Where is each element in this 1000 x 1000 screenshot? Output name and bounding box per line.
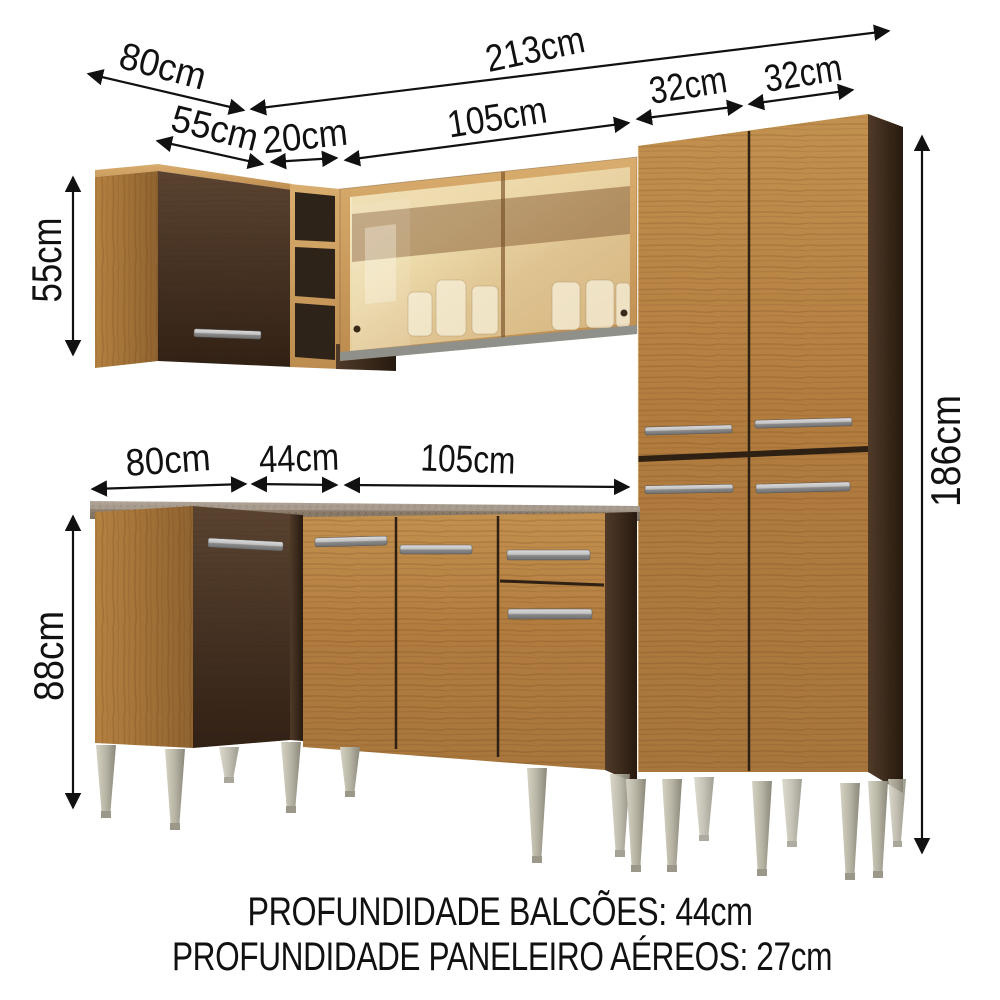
leg bbox=[165, 749, 185, 830]
footer-depth-balcoes: PROFUNDIDADE BALCÕES: 44cm bbox=[248, 889, 753, 934]
upper-left-wall-cabinet bbox=[95, 164, 292, 368]
glass-window-reflection bbox=[365, 224, 396, 304]
dim-label: 32cm bbox=[646, 59, 730, 113]
dim-right-pantry-186: 186cm bbox=[922, 137, 969, 852]
base-door-handle bbox=[315, 536, 387, 547]
dim-label: 55cm bbox=[167, 98, 263, 160]
dim-top-glass-105: 105cm bbox=[346, 89, 628, 160]
leg bbox=[888, 779, 906, 847]
dim-left-upper-55: 55cm bbox=[23, 178, 73, 354]
glass-wall-cabinet bbox=[340, 157, 637, 361]
dim-top-pantry-32a: 32cm bbox=[638, 59, 741, 119]
dim-label: 80cm bbox=[124, 437, 212, 485]
leg bbox=[694, 777, 714, 841]
dim-mid-side-80: 80cm bbox=[93, 437, 245, 489]
footer-depth-paneleiro: PROFUNDIDADE PANELEIRO AÉREOS: 27cm bbox=[172, 934, 832, 979]
leg bbox=[868, 781, 888, 878]
shelf-opening bbox=[295, 303, 335, 360]
base-door-handle bbox=[508, 609, 592, 619]
leg bbox=[340, 747, 360, 797]
base-corner-return bbox=[290, 514, 303, 741]
leg bbox=[626, 779, 646, 872]
leg bbox=[96, 745, 116, 818]
base-counter-end-panel bbox=[605, 512, 637, 784]
leg bbox=[752, 781, 772, 876]
base-door-handle bbox=[400, 545, 472, 554]
dim-label: 105cm bbox=[444, 89, 549, 146]
dim-arrow bbox=[93, 484, 245, 489]
shelf-opening bbox=[295, 247, 335, 299]
footer-depth-notes: PROFUNDIDADE BALCÕES: 44cm PROFUNDIDADE … bbox=[172, 889, 832, 979]
base-corner-cabinet bbox=[95, 506, 303, 748]
glass-door-knob bbox=[354, 326, 361, 333]
dim-label: 213cm bbox=[482, 19, 589, 81]
drawer-handle bbox=[507, 550, 590, 560]
leg bbox=[281, 742, 301, 813]
kitchen-cabinet-diagram: 80cm 213cm 55cm 20cm 105cm 32cm 32cm 55 bbox=[0, 0, 1000, 1000]
dim-top-side-80: 80cm bbox=[89, 35, 243, 110]
dim-label: 44cm bbox=[258, 437, 339, 482]
dim-label: 20cm bbox=[261, 112, 350, 163]
dim-label: 80cm bbox=[115, 35, 211, 98]
leg bbox=[219, 747, 239, 783]
dim-mid-corner-44: 44cm bbox=[253, 437, 340, 485]
dim-top-corner-55: 55cm bbox=[158, 98, 263, 164]
dim-label: 105cm bbox=[420, 437, 516, 482]
shelf-opening bbox=[295, 192, 335, 242]
tall-pantry-cabinet bbox=[638, 114, 903, 793]
leg bbox=[527, 768, 547, 863]
dim-label: 55cm bbox=[23, 218, 70, 303]
dim-top-pantry-32b: 32cm bbox=[750, 47, 852, 104]
base-counter bbox=[303, 512, 637, 784]
dim-top-shelf-20: 20cm bbox=[261, 112, 350, 163]
dim-arrow bbox=[346, 485, 628, 487]
dim-mid-counter-105: 105cm bbox=[346, 437, 628, 487]
glass-door-knob bbox=[621, 310, 628, 317]
dim-label: 88cm bbox=[25, 611, 72, 701]
leg bbox=[840, 783, 860, 880]
leg bbox=[782, 779, 802, 847]
leg bbox=[662, 779, 682, 872]
dim-left-base-88: 88cm bbox=[25, 517, 73, 807]
pantry-handle bbox=[645, 484, 733, 494]
dim-arrow bbox=[253, 484, 336, 485]
diagram-canvas: 80cm 213cm 55cm 20cm 105cm 32cm 32cm 55 bbox=[0, 0, 1000, 1000]
dim-label: 186cm bbox=[922, 395, 969, 507]
